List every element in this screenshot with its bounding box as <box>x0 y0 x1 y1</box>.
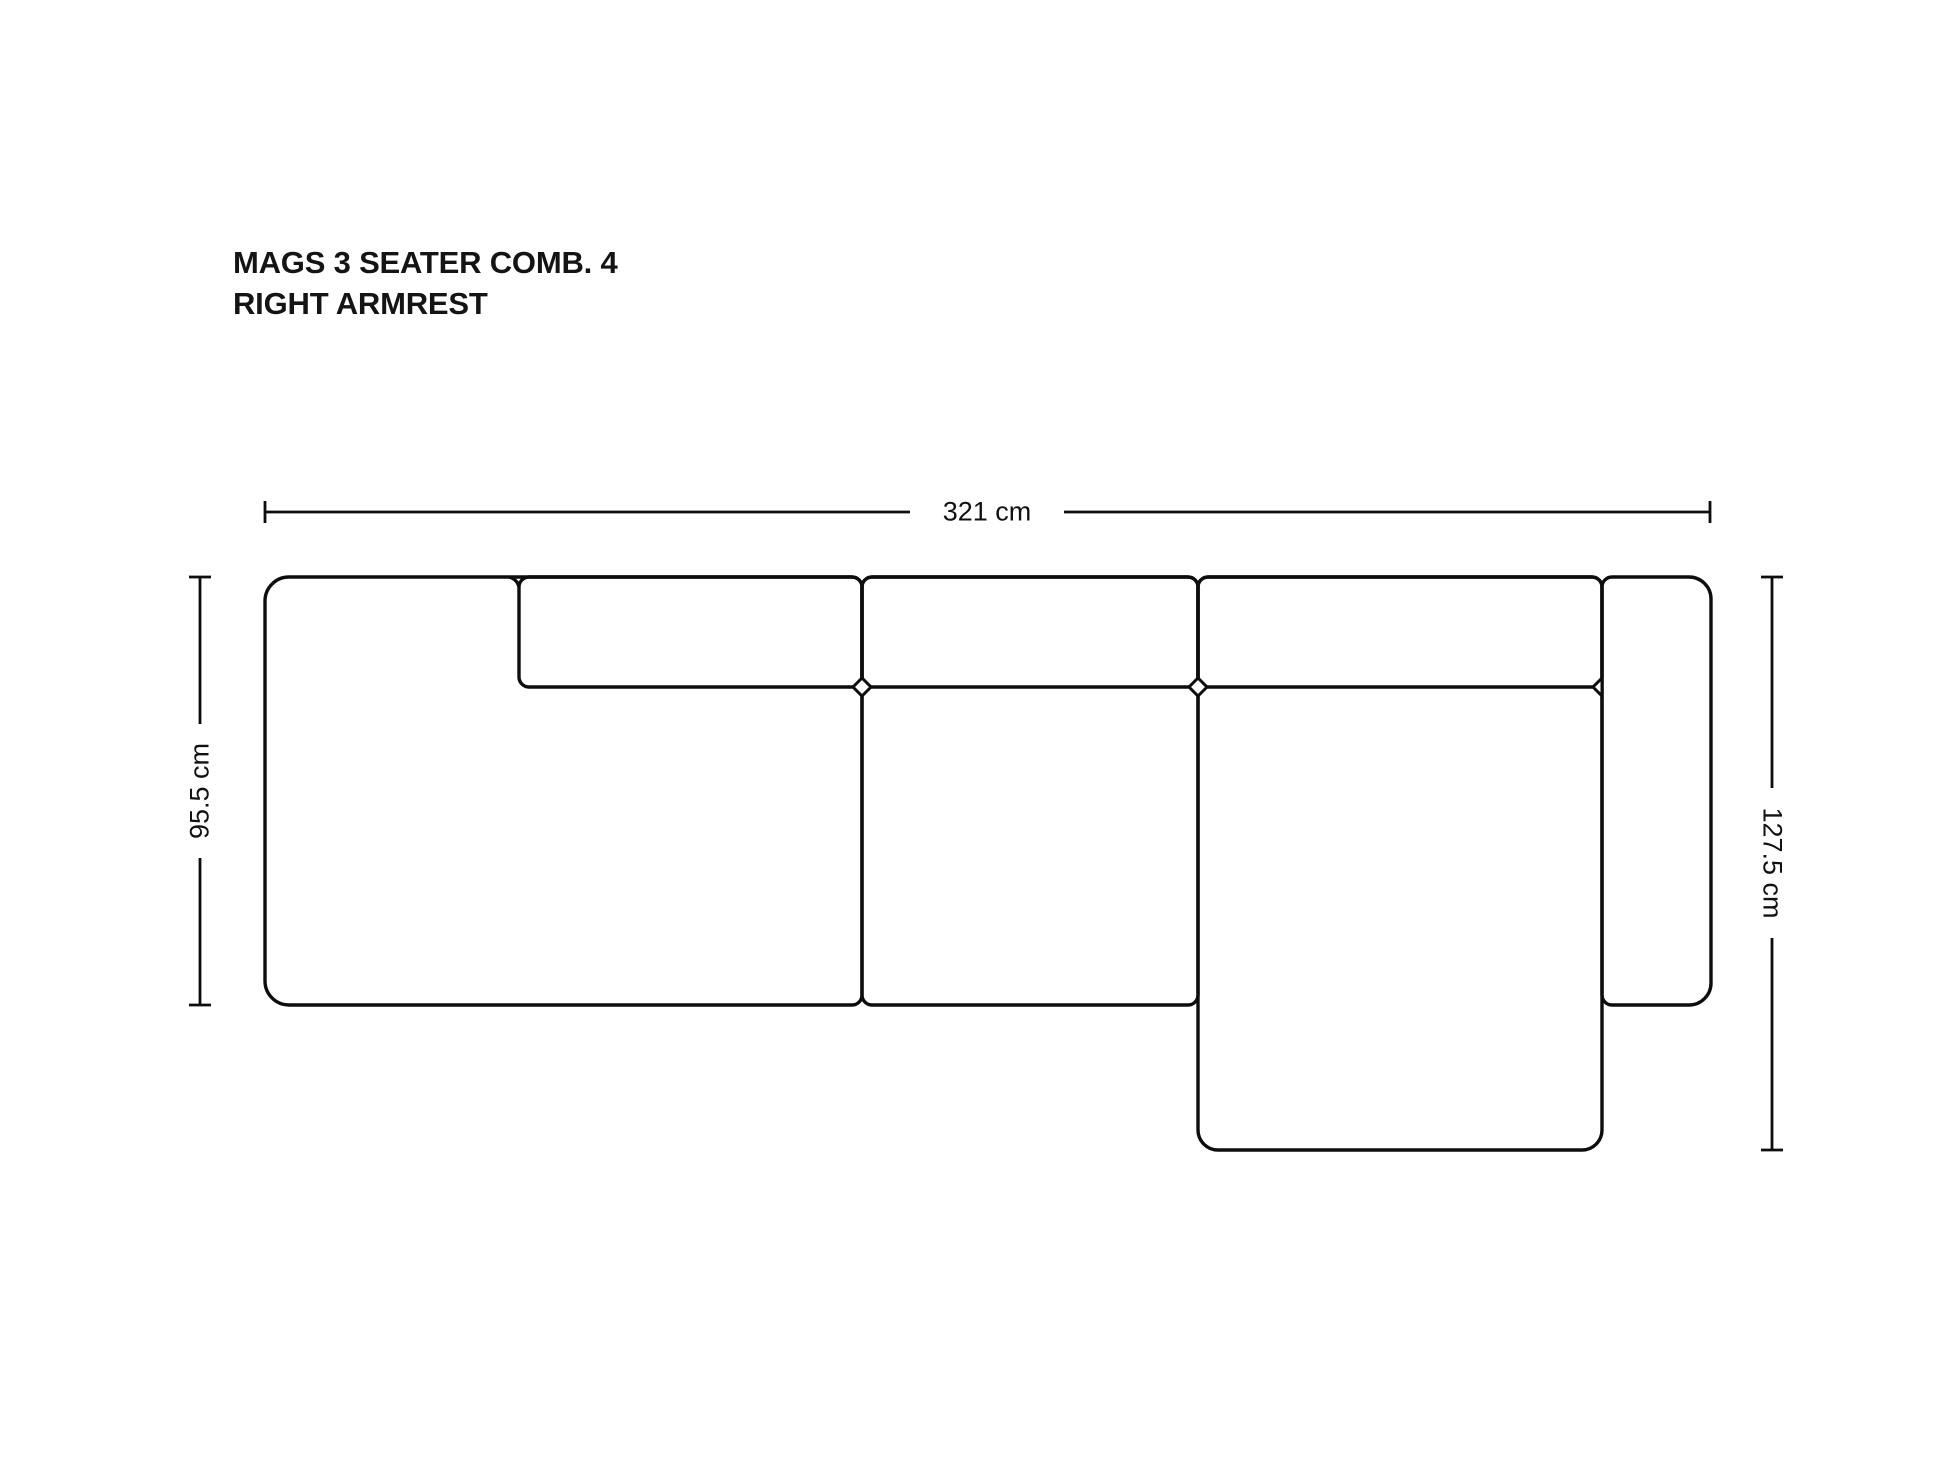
module-right-armrest-outline <box>1602 577 1711 1005</box>
joint-half-diamond <box>1593 678 1602 696</box>
module-left-outline <box>265 577 862 1005</box>
joint-diamond <box>853 678 871 696</box>
sofa-plan-diagram <box>0 0 1946 1464</box>
module-chaise-outline <box>1198 577 1602 1150</box>
cushion-chaise-back-outline <box>1198 577 1602 687</box>
page: MAGS 3 SEATER COMB. 4 RIGHT ARMREST 321 … <box>0 0 1946 1464</box>
joint-diamond <box>1189 678 1207 696</box>
dimension-depth-left-label: 95.5 cm <box>185 743 216 839</box>
cushion-middle-back-outline <box>862 577 1198 687</box>
dimension-depth-right-label: 127.5 cm <box>1757 807 1788 918</box>
cushion-left-back-outline <box>519 577 862 687</box>
module-middle-outline <box>862 577 1198 1005</box>
dimension-width-label: 321 cm <box>943 497 1032 528</box>
